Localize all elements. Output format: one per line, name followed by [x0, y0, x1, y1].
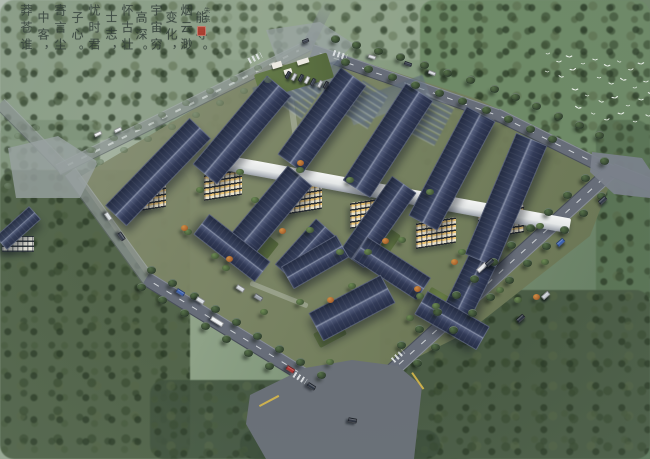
- bird-icon: [611, 95, 619, 101]
- bird-icon: [628, 68, 634, 73]
- bird-icon: [545, 70, 550, 73]
- bird-icon: [566, 55, 573, 60]
- bird-icon: [585, 94, 590, 97]
- bird-icon: [597, 77, 602, 80]
- calligraphy-inscription: 莽苍谁中客，寄言尘子心。忧时君士志，怀古壮高深。宇宙穷变化，烟云渺能寻。朱熹: [0, 0, 230, 90]
- bird-icon: [643, 80, 649, 84]
- bird-icon: [608, 82, 614, 86]
- bird-icon: [556, 60, 562, 64]
- bird-icon: [626, 104, 631, 107]
- calligraphy-column: 忧时君: [86, 4, 103, 55]
- calligraphy-column: 士志，: [103, 11, 120, 62]
- bird-icon: [592, 58, 598, 62]
- bird-icon: [569, 67, 577, 73]
- bird-icon: [617, 111, 624, 116]
- calligraphy-signature: 朱熹: [201, 7, 211, 24]
- bird-icon: [632, 86, 637, 90]
- bird-icon: [604, 118, 610, 123]
- bird-icon: [590, 112, 595, 116]
- bird-icon: [633, 121, 638, 124]
- calligraphy-column: 莽苍谁: [18, 4, 35, 55]
- bird-icon: [572, 88, 579, 93]
- bird-icon: [558, 75, 564, 80]
- calligraphy-column: 子心。: [69, 11, 86, 62]
- bird-icon: [619, 77, 627, 83]
- aerial-rendering-canvas: 莽苍谁中客，寄言尘子心。忧时君士志，怀古壮高深。宇宙穷变化，烟云渺能寻。朱熹: [0, 0, 650, 459]
- bird-icon: [574, 105, 582, 111]
- calligraphy-column: 中客，: [35, 11, 52, 62]
- bird-icon: [638, 98, 644, 102]
- bird-icon: [637, 61, 644, 66]
- overlay-layer: 莽苍谁中客，寄言尘子心。忧时君士志，怀古壮高深。宇宙穷变化，烟云渺能寻。朱熹: [0, 0, 650, 459]
- bird-icon: [545, 52, 550, 56]
- seal-stamp-icon: [197, 26, 206, 36]
- bird-icon: [581, 62, 586, 65]
- calligraphy-column: 寄言尘: [52, 4, 69, 55]
- bird-icon: [616, 60, 621, 64]
- bird-icon: [645, 114, 650, 118]
- bird-icon: [603, 63, 610, 68]
- bird-icon: [598, 100, 604, 105]
